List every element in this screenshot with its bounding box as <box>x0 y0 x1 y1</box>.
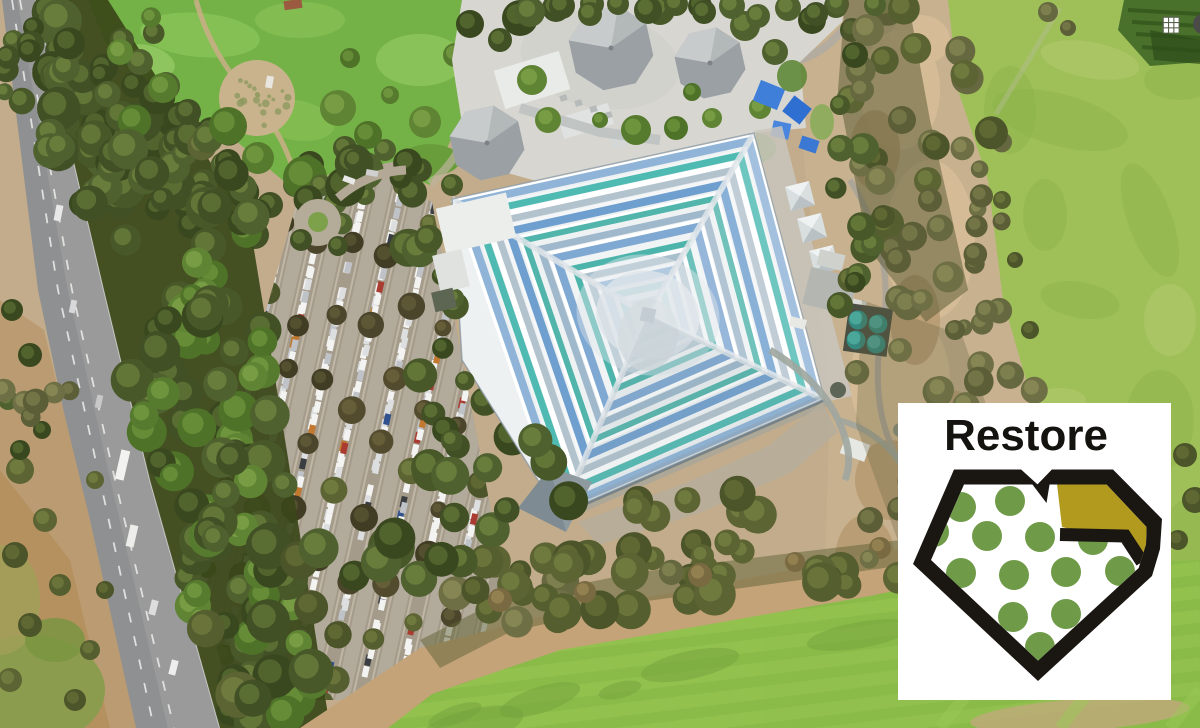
svg-text:Restore: Restore <box>944 411 1108 460</box>
